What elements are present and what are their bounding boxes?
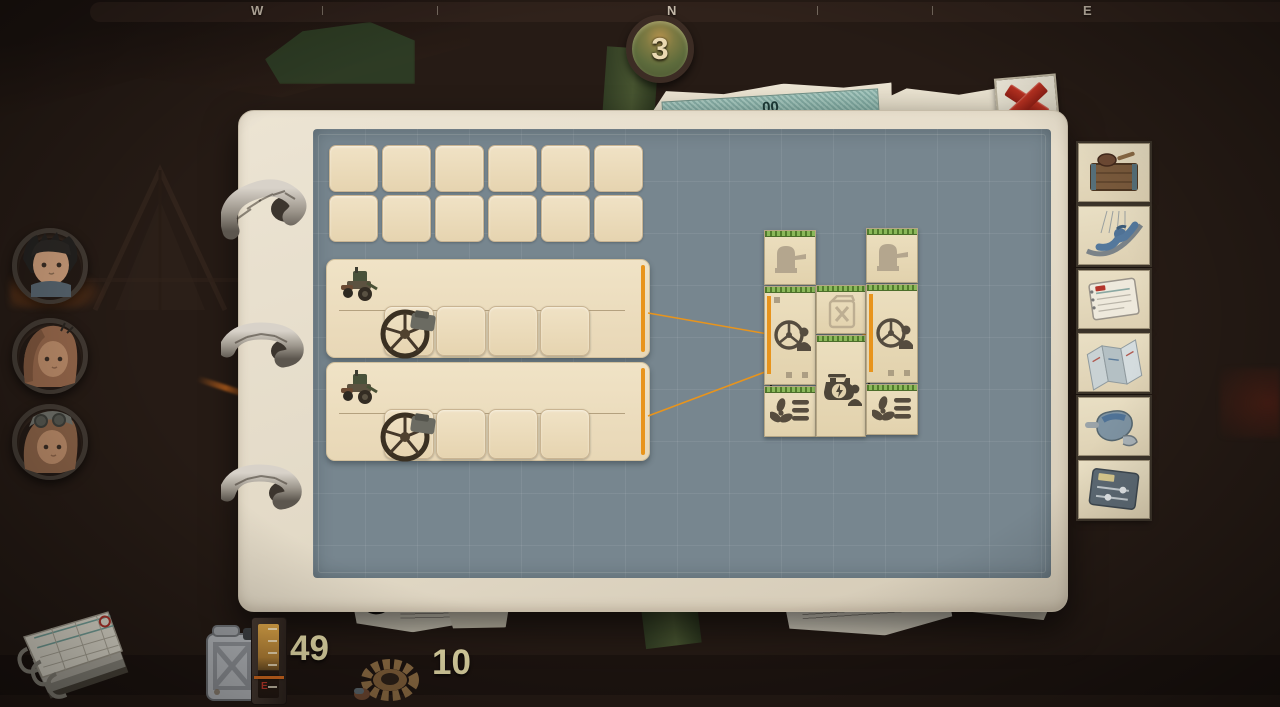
- module-connector-strip: [765, 287, 815, 293]
- tractor-icon: [339, 370, 379, 408]
- fan-list-icon: [872, 394, 914, 432]
- module-ventilation[interactable]: [764, 386, 816, 437]
- compass-west-label: W: [251, 3, 264, 18]
- fuel-amount: 49: [290, 629, 329, 669]
- module-steering-station[interactable]: [866, 284, 918, 383]
- inventory-slot[interactable]: [594, 195, 643, 242]
- module-turret[interactable]: [764, 230, 816, 285]
- module-connector-strip: [817, 286, 865, 292]
- slot-pip: [888, 370, 894, 376]
- vehicle-slot-empty[interactable]: [488, 409, 538, 459]
- module-link-bar: [869, 294, 873, 372]
- control-panel-icon: [1079, 461, 1149, 518]
- module-ventilation[interactable]: [866, 384, 918, 435]
- spoked-wheel-icon: [379, 302, 441, 362]
- module-engine-station[interactable]: [816, 335, 866, 437]
- rope-binding: [221, 173, 317, 249]
- game-screen: W N E 3: [0, 0, 1280, 707]
- slot-pip: [786, 372, 792, 378]
- rope-binding: [221, 449, 317, 525]
- inventory-slot[interactable]: [435, 145, 484, 192]
- module-connector-strip: [867, 385, 917, 391]
- hooded-traveler-icon: [17, 323, 83, 389]
- inventory-slot[interactable]: [329, 195, 378, 242]
- inventory-slot[interactable]: [329, 145, 378, 192]
- compass-tick: [932, 6, 933, 15]
- inventory-slot[interactable]: [382, 195, 431, 242]
- vehicle-slot-filled[interactable]: [384, 306, 434, 356]
- crew-portrait-1[interactable]: [12, 228, 88, 304]
- repair-glove-icon: [1079, 398, 1149, 455]
- planner-page: [313, 129, 1051, 578]
- module-turret[interactable]: [866, 228, 918, 283]
- resource-bar-band: [0, 655, 1280, 695]
- fuel-gauge-needle: [254, 676, 284, 679]
- inventory-slot[interactable]: [488, 195, 537, 242]
- slot-pip: [802, 372, 808, 378]
- module-connector-strip: [765, 231, 815, 237]
- day-counter-value: 3: [651, 31, 668, 67]
- sidebar-item-hammock[interactable]: [1078, 206, 1150, 265]
- checklist-pad-icon: [1079, 271, 1149, 328]
- compass-bar: [90, 2, 1280, 22]
- rope-binding: [221, 309, 317, 385]
- ledger-notebook-icon[interactable]: [6, 600, 140, 706]
- boy-spiky-hair-icon: [17, 233, 83, 299]
- inventory-slot[interactable]: [594, 145, 643, 192]
- fan-list-icon: [770, 396, 812, 434]
- sidebar-item-checklist[interactable]: [1078, 270, 1150, 329]
- fuel-gauge-fill: E: [258, 624, 279, 698]
- row-link-bar: [641, 368, 645, 455]
- module-connector-strip: [817, 336, 865, 342]
- vehicle-slot-empty[interactable]: [436, 306, 486, 356]
- gear-icon: [348, 658, 428, 706]
- inventory-slot[interactable]: [541, 145, 590, 192]
- vehicle-slot-empty[interactable]: [540, 306, 590, 356]
- day-counter-badge: 3: [626, 15, 694, 83]
- compass-tick: [437, 6, 438, 15]
- row-link-bar: [641, 265, 645, 352]
- vehicle-row-2[interactable]: [326, 362, 650, 461]
- sidebar-item-storage-crate[interactable]: [1078, 143, 1150, 202]
- turret-icon: [773, 242, 809, 278]
- inventory-slot[interactable]: [435, 195, 484, 242]
- fuel-gauge-empty-label: E: [261, 681, 268, 692]
- vehicle-slot-empty[interactable]: [488, 306, 538, 356]
- crew-portrait-3[interactable]: [12, 404, 88, 480]
- module-steering-station[interactable]: [764, 286, 816, 385]
- module-connector-strip: [867, 229, 917, 235]
- vehicle-slot-empty[interactable]: [540, 409, 590, 459]
- storage-crate-icon: [1079, 144, 1149, 201]
- blueprint-map-icon: [1079, 334, 1149, 391]
- background-bush: [1220, 368, 1280, 438]
- crew-portrait-2[interactable]: [12, 318, 88, 394]
- tractor-icon: [339, 267, 379, 305]
- vehicle-slot-filled[interactable]: [384, 409, 434, 459]
- upgrade-pip: [774, 297, 780, 303]
- vehicle-slot-empty[interactable]: [436, 409, 486, 459]
- inventory-slot[interactable]: [541, 195, 590, 242]
- vehicle-row-1[interactable]: [326, 259, 650, 358]
- hammock-icon: [1079, 207, 1149, 264]
- spoked-wheel-icon: [379, 405, 441, 465]
- module-connector-strip: [867, 285, 917, 291]
- inventory-slot[interactable]: [382, 145, 431, 192]
- engine-power-icon: [822, 370, 862, 406]
- sidebar-item-control-panel[interactable]: [1078, 460, 1150, 519]
- fuel-can-empty-icon: [828, 295, 856, 329]
- module-connector-strip: [765, 387, 815, 393]
- caravan-planner-notebook: [238, 110, 1068, 612]
- steering-wheel-icon: [875, 313, 915, 355]
- goggles-traveler-icon: [17, 409, 83, 475]
- slot-pip: [904, 370, 910, 376]
- fuel-gauge: E: [251, 617, 287, 705]
- sidebar-item-blueprint-map[interactable]: [1078, 333, 1150, 392]
- module-fuel-empty[interactable]: [816, 285, 866, 334]
- compass-east-label: E: [1083, 3, 1093, 18]
- gears-amount: 10: [432, 643, 471, 683]
- inventory-slot[interactable]: [488, 145, 537, 192]
- steering-wheel-icon: [773, 315, 813, 357]
- compass-tick: [322, 6, 323, 15]
- module-link-bar: [767, 296, 771, 374]
- turret-icon: [875, 240, 911, 276]
- sidebar-item-repair-glove[interactable]: [1078, 397, 1150, 456]
- compass-tick: [817, 6, 818, 15]
